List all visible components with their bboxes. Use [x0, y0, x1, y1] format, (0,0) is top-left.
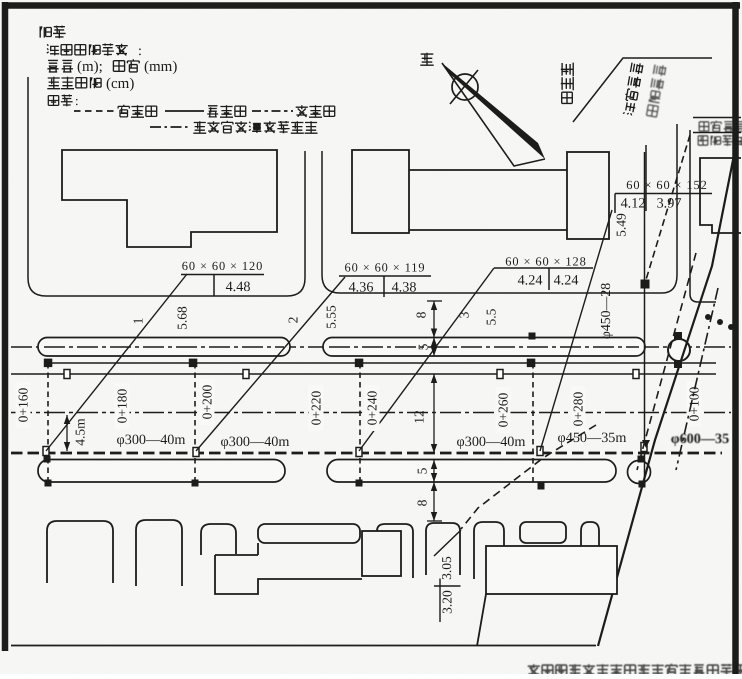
svg-text:5: 5: [416, 343, 431, 350]
svg-text:φ300—40m: φ300—40m: [457, 434, 526, 450]
svg-text:4.24: 4.24: [554, 273, 579, 289]
svg-text:φ600—35: φ600—35: [671, 431, 730, 447]
svg-text:8: 8: [415, 499, 430, 506]
svg-text:60 × 60 × 119: 60 × 60 × 119: [345, 261, 426, 275]
svg-text:4.36: 4.36: [349, 280, 374, 296]
svg-text::: :: [75, 93, 79, 108]
svg-text:2: 2: [286, 317, 301, 324]
svg-text:φ300—40m: φ300—40m: [221, 434, 290, 450]
svg-text:4.24: 4.24: [518, 273, 543, 289]
svg-text:3: 3: [457, 311, 472, 318]
svg-text:5.49: 5.49: [614, 213, 629, 237]
svg-text:0+160: 0+160: [16, 387, 31, 422]
svg-text:3.20: 3.20: [440, 590, 455, 614]
svg-text:1: 1: [131, 318, 146, 325]
svg-text:4.48: 4.48: [226, 279, 251, 295]
svg-text:(mm): (mm): [144, 59, 177, 75]
svg-text:4.38: 4.38: [392, 280, 417, 296]
svg-text:0+280: 0+280: [571, 391, 586, 426]
svg-text:φ450—35m: φ450—35m: [558, 430, 627, 446]
svg-text:(cm): (cm): [106, 76, 134, 92]
svg-text:5.5: 5.5: [484, 308, 499, 325]
svg-text:3.05: 3.05: [439, 556, 454, 580]
svg-text:0+260: 0+260: [496, 392, 511, 427]
svg-text:60 × 60 × 120: 60 × 60 × 120: [182, 259, 263, 273]
svg-text:0+240: 0+240: [365, 390, 380, 425]
svg-text:12: 12: [412, 410, 427, 424]
svg-text:4.5m: 4.5m: [73, 418, 88, 446]
svg-text:(m);: (m);: [77, 59, 103, 75]
svg-text::: :: [138, 44, 142, 59]
svg-text:5.68: 5.68: [175, 306, 190, 330]
svg-text:0+220: 0+220: [309, 390, 324, 425]
svg-text:0+180: 0+180: [115, 388, 130, 423]
svg-text:φ450—28: φ450—28: [598, 283, 613, 339]
svg-text:8: 8: [414, 311, 429, 318]
svg-text:60 × 60 × 128: 60 × 60 × 128: [505, 255, 586, 269]
svg-text:60 × 60 × 152: 60 × 60 × 152: [626, 178, 707, 192]
svg-text:5.55: 5.55: [324, 305, 339, 329]
svg-text:5: 5: [415, 467, 430, 474]
svg-text:0+200: 0+200: [200, 384, 215, 419]
svg-text:4.12: 4.12: [621, 196, 646, 212]
svg-text:φ300—40m: φ300—40m: [117, 432, 186, 448]
